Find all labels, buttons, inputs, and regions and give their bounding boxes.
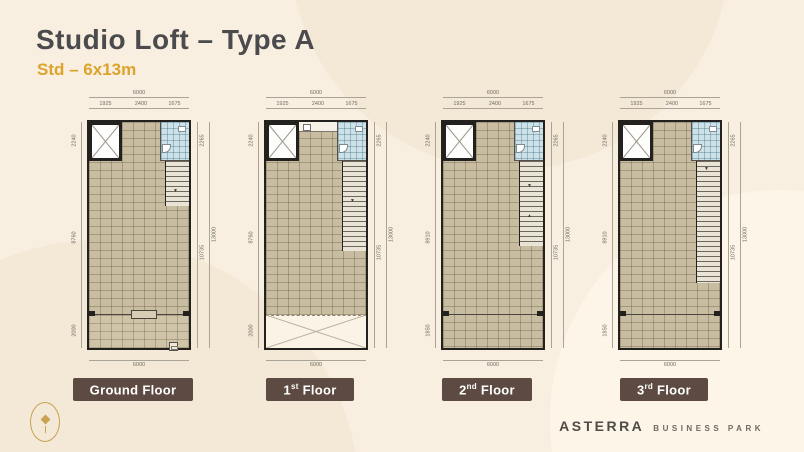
floorplan-second-floor: 6000 1925 2400 1675 2240 8910 1850 2265 … (399, 88, 575, 408)
dim-right-total: 13000 (743, 215, 750, 255)
dimension-line (612, 122, 613, 348)
dimension-line (443, 108, 543, 109)
brand-lockup: ASTERRA BUSINESS PARK (559, 418, 764, 434)
dim-right-total: 13000 (212, 215, 219, 255)
dim-left: 1850 (426, 311, 433, 351)
floorplan-third-floor: 6000 1925 2400 1675 2240 8910 1850 2265 … (576, 88, 752, 408)
dim-segment: 1675 (691, 101, 720, 108)
dimension-line (443, 97, 543, 98)
dim-top-total: 6000 (266, 90, 366, 97)
dim-right: 10735 (731, 233, 738, 273)
dim-right: 10735 (377, 233, 384, 273)
dim-bottom: 6000 (89, 362, 189, 369)
dimension-line (620, 360, 720, 361)
dimension-line (89, 108, 189, 109)
kitchen-sink-icon (303, 124, 311, 131)
dimension-line (374, 122, 375, 348)
dim-segment: 2400 (653, 101, 691, 108)
wall-pier (89, 311, 95, 316)
staircase (519, 161, 543, 246)
logo-gem-icon (41, 415, 51, 425)
wall-pier (714, 311, 720, 316)
dim-left: 8760 (72, 218, 79, 258)
elevator-x-icon (269, 125, 296, 158)
void-x-icon (266, 315, 366, 348)
slide: Studio Loft – Type A Std – 6x13m 6000 19… (0, 0, 804, 452)
dim-left: 2240 (603, 121, 610, 161)
dim-segment: 1675 (160, 101, 189, 108)
dim-segment: 1925 (443, 101, 476, 108)
dim-bottom: 6000 (620, 362, 720, 369)
toilet-icon (355, 126, 363, 132)
page-subtitle: Std – 6x13m (37, 60, 136, 80)
dimension-line (266, 97, 366, 98)
brand-name: ASTERRA (559, 418, 644, 434)
stair-direction-icon: ▼ (173, 188, 178, 194)
dim-top-total: 6000 (89, 90, 189, 97)
dim-right: 2265 (554, 121, 561, 161)
logo-stem-icon (45, 426, 46, 433)
toilet-icon (178, 126, 186, 132)
floorplan-ground-floor: 6000 1925 2400 1675 2240 8760 2000 2265 … (45, 88, 221, 408)
dimension-line (209, 122, 210, 348)
dim-left: 2000 (72, 311, 79, 351)
dim-left: 8910 (426, 218, 433, 258)
floor-label-third: 3rd Floor (620, 378, 708, 401)
stair-direction-icon: ▼ (350, 198, 355, 204)
dimension-line (386, 122, 387, 348)
dim-bottom: 6000 (266, 362, 366, 369)
dimension-line (266, 360, 366, 361)
dimension-line (197, 122, 198, 348)
brand-tagline: BUSINESS PARK (653, 424, 764, 433)
balcony-wall (443, 314, 543, 315)
elevator-x-icon (623, 125, 650, 158)
dim-right: 2265 (377, 121, 384, 161)
elevator-x-icon (92, 125, 119, 158)
dim-right: 10735 (200, 233, 207, 273)
floor-label-first: 1st Floor (266, 378, 353, 401)
dimension-line (620, 108, 720, 109)
dim-left: 2240 (249, 121, 256, 161)
dimension-line (435, 122, 436, 348)
dim-segment: 1925 (89, 101, 122, 108)
dim-right: 2265 (200, 121, 207, 161)
balcony-wall (620, 314, 720, 315)
wall-pier (443, 311, 449, 316)
floorplan-first-floor: 6000 1925 2400 1675 2240 8760 2000 2265 … (222, 88, 398, 408)
dim-right-total: 13000 (389, 215, 396, 255)
toilet-icon (709, 126, 717, 132)
stair-direction-icon: ▼ (527, 183, 532, 189)
wall-pier (183, 311, 189, 316)
dimension-line (266, 108, 366, 109)
dim-right-total: 13000 (566, 215, 573, 255)
dim-segment: 1675 (337, 101, 366, 108)
dim-left: 8760 (249, 218, 256, 258)
dim-segment: 1925 (620, 101, 653, 108)
power-meter-icon (169, 342, 178, 351)
dim-segment: 1925 (266, 101, 299, 108)
asterra-logo-icon (30, 402, 60, 442)
dimension-line (728, 122, 729, 348)
dim-bottom: 6000 (443, 362, 543, 369)
page-title: Studio Loft – Type A (36, 24, 315, 56)
dimension-line (258, 122, 259, 348)
dim-right: 2265 (731, 121, 738, 161)
dim-left: 2240 (426, 121, 433, 161)
wall-pier (537, 311, 543, 316)
dimension-line (89, 360, 189, 361)
dim-right: 10735 (554, 233, 561, 273)
dimension-line (81, 122, 82, 348)
staircase (696, 161, 720, 283)
floor-label-second: 2nd Floor (442, 378, 532, 401)
dim-left: 2000 (249, 311, 256, 351)
elevator-x-icon (446, 125, 473, 158)
dim-segment: 1675 (514, 101, 543, 108)
entry-step (131, 310, 157, 319)
dimension-line (443, 360, 543, 361)
toilet-icon (532, 126, 540, 132)
dimension-line (620, 97, 720, 98)
dim-left: 2240 (72, 121, 79, 161)
dim-top-total: 6000 (620, 90, 720, 97)
dim-top-total: 6000 (443, 90, 543, 97)
dimension-line (563, 122, 564, 348)
dimension-line (89, 97, 189, 98)
dim-segment: 2400 (476, 101, 514, 108)
staircase (165, 161, 189, 206)
staircase (342, 161, 366, 251)
dim-left: 1850 (603, 311, 610, 351)
floor-label-ground: Ground Floor (73, 378, 194, 401)
dim-segment: 2400 (299, 101, 337, 108)
dimension-line (740, 122, 741, 348)
dimension-line (551, 122, 552, 348)
dim-segment: 2400 (122, 101, 160, 108)
stair-direction-icon: ▼ (704, 166, 709, 172)
dim-left: 8910 (603, 218, 610, 258)
wall-pier (620, 311, 626, 316)
stair-direction-icon: ▲ (527, 213, 532, 219)
